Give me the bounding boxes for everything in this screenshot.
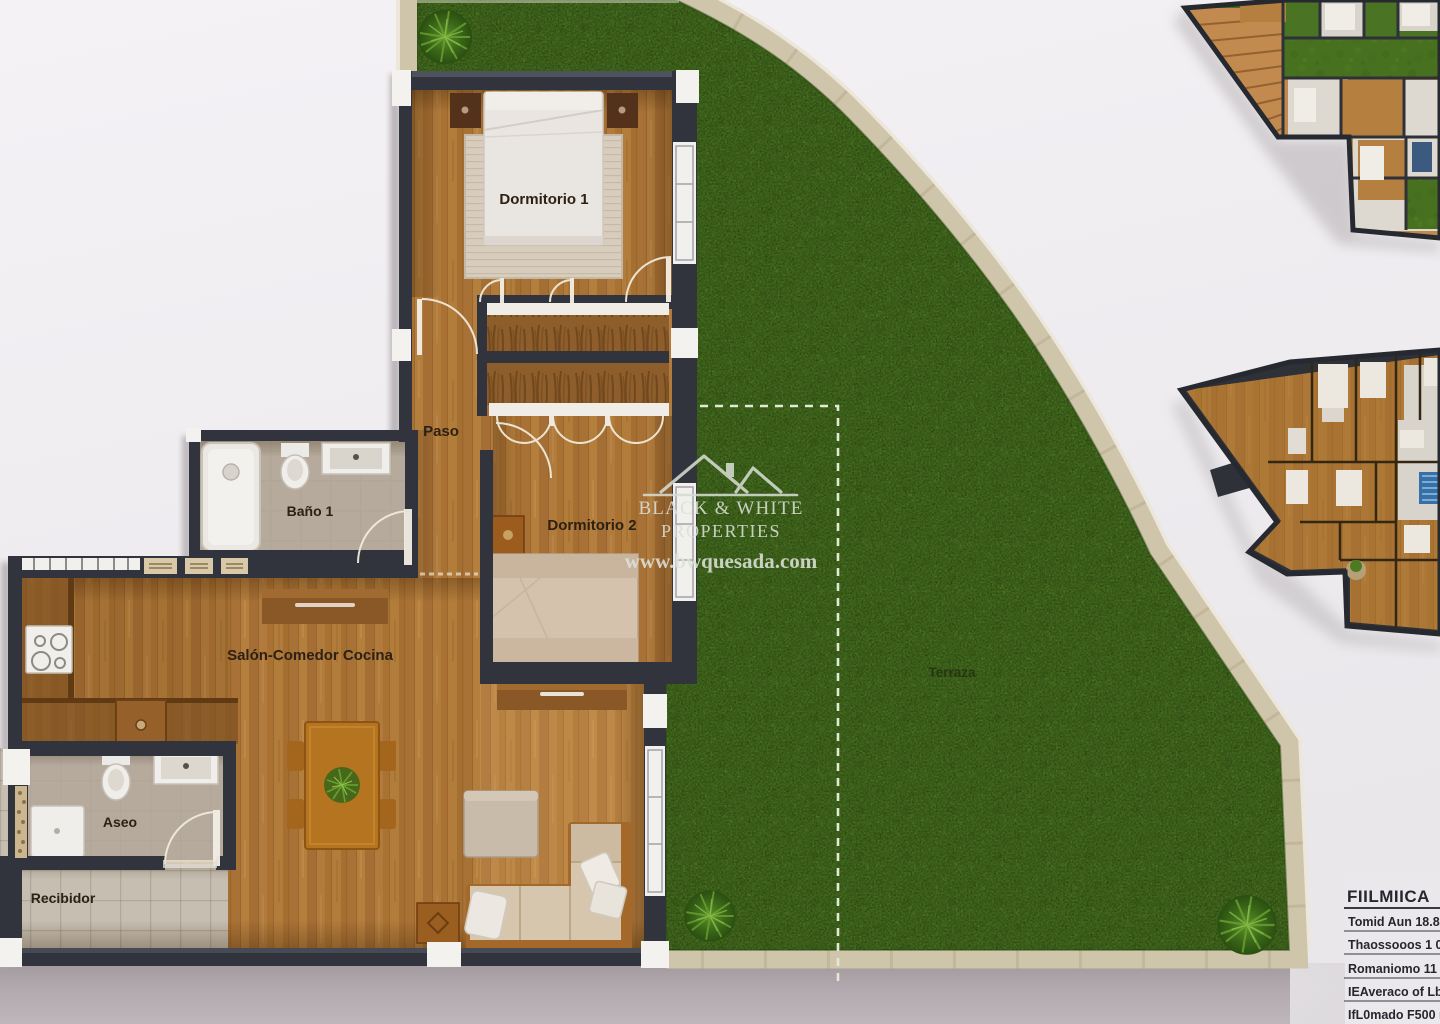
svg-text:Dormitorio 1: Dormitorio 1 [499, 191, 588, 208]
svg-text:Salón-Comedor Cocina: Salón-Comedor Cocina [227, 647, 394, 664]
svg-text:Aseo: Aseo [103, 814, 137, 830]
svg-text:Paso: Paso [423, 423, 459, 440]
svg-text:www.bwquesada.com: www.bwquesada.com [625, 549, 818, 573]
svg-text:BLACK & WHITE: BLACK & WHITE [638, 498, 803, 519]
svg-text:Tomid Aun 18.85 m: Tomid Aun 18.85 m [1348, 915, 1440, 929]
svg-text:Dormitorio 2: Dormitorio 2 [547, 517, 636, 534]
svg-text:Recibidor: Recibidor [31, 890, 96, 906]
svg-text:Baño 1: Baño 1 [287, 503, 334, 519]
svg-text:PROPERTIES: PROPERTIES [661, 521, 781, 541]
svg-text:FIILMIICA: FIILMIICA [1347, 887, 1430, 906]
svg-text:IEAveraco of Lbam: IEAveraco of Lbam [1348, 985, 1440, 999]
svg-text:IfL0mado F500 m: IfL0mado F500 m [1348, 1008, 1440, 1022]
svg-text:Terraza: Terraza [928, 665, 976, 680]
svg-text:Thaossooos 1 0 an: Thaossooos 1 0 an [1348, 938, 1440, 952]
svg-text:Romaniomo 11 8m: Romaniomo 11 8m [1348, 962, 1440, 976]
